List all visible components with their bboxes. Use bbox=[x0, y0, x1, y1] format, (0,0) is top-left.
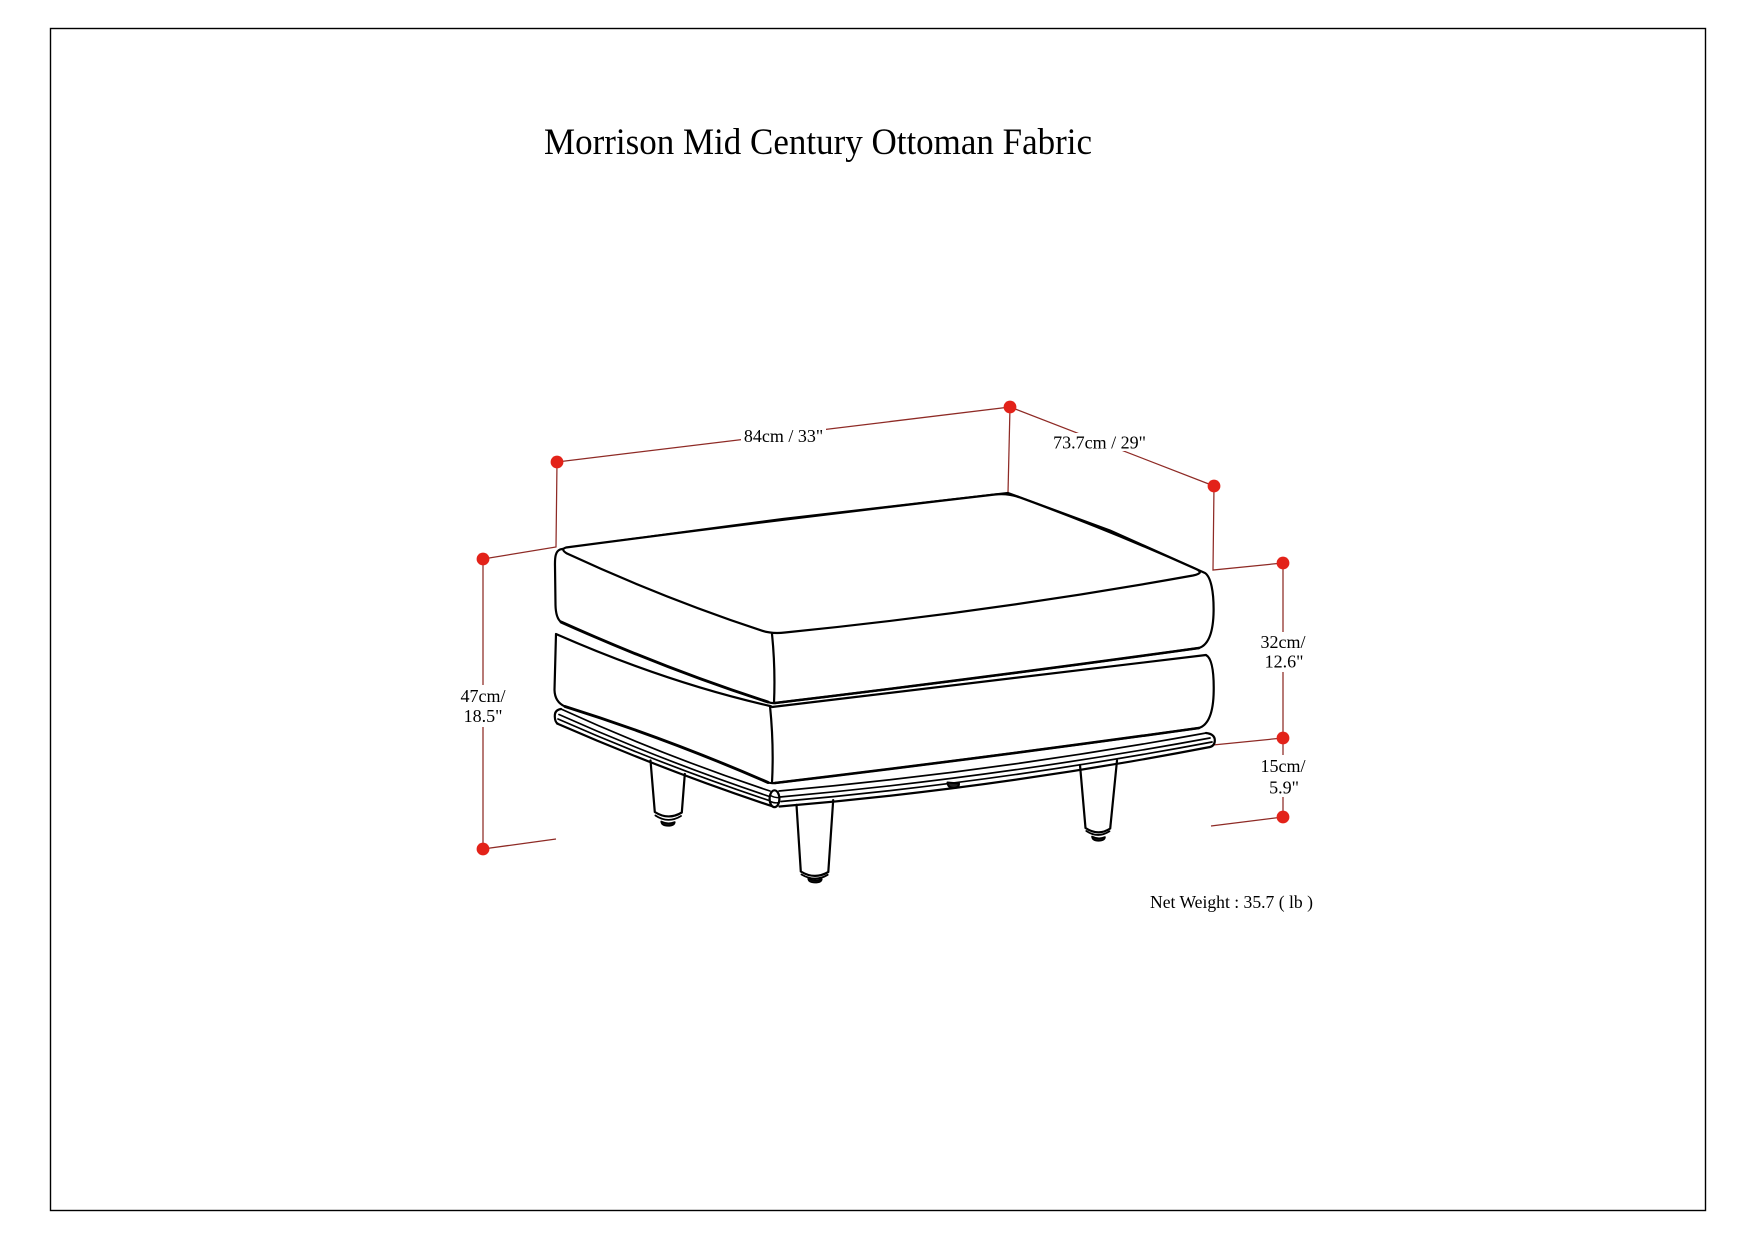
svg-text:32cm/: 32cm/ bbox=[1261, 632, 1306, 652]
svg-text:Morrison Mid Century Ottoman F: Morrison Mid Century Ottoman Fabric bbox=[544, 122, 1092, 163]
svg-text:73.7cm / 29": 73.7cm / 29" bbox=[1053, 433, 1146, 453]
svg-text:84cm / 33": 84cm / 33" bbox=[744, 426, 823, 446]
svg-text:18.5": 18.5" bbox=[464, 706, 503, 726]
svg-text:Net Weight : 35.7 ( lb ): Net Weight : 35.7 ( lb ) bbox=[1150, 892, 1313, 912]
svg-text:5.9": 5.9" bbox=[1269, 778, 1299, 798]
svg-text:12.6": 12.6" bbox=[1265, 652, 1304, 672]
svg-text:15cm/: 15cm/ bbox=[1261, 756, 1306, 776]
svg-text:47cm/: 47cm/ bbox=[461, 686, 506, 706]
